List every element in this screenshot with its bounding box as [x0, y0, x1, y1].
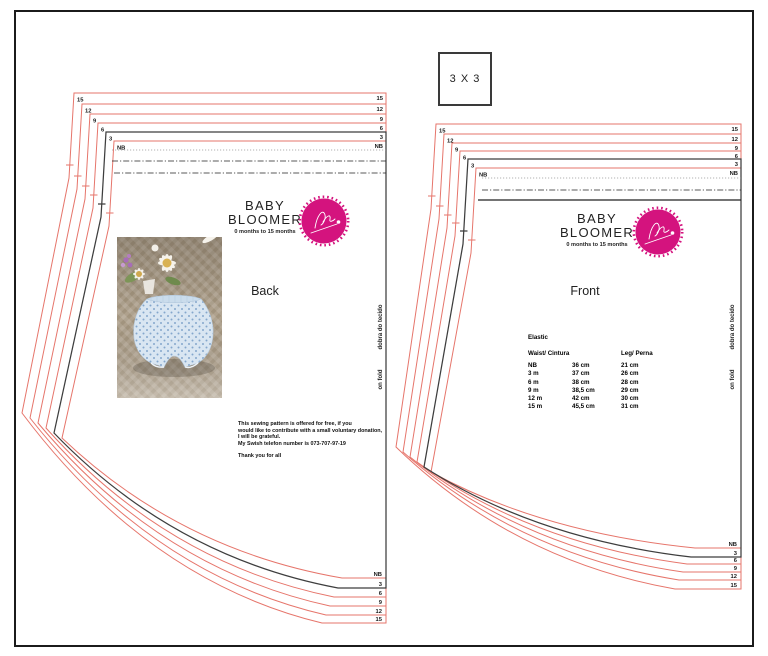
size-label: 3 — [109, 137, 113, 143]
front-fold-line-text: on fold dobra do tecido — [728, 262, 738, 432]
size-label: 6 — [734, 558, 738, 564]
pattern-sheet: 151515121212999666333NBNBNB1515151212129… — [0, 0, 768, 656]
fold-text-pt: dobra do tecido — [378, 305, 384, 350]
elastic-cell: 21 cm — [621, 363, 681, 369]
elastic-cell: 26 cm — [621, 371, 681, 377]
bloomer-photo-image — [117, 237, 222, 398]
size-label: 6 — [379, 591, 383, 597]
elastic-cell: 3 m — [528, 371, 572, 377]
size-label: 3 — [379, 582, 383, 588]
size-label: NB — [374, 572, 382, 578]
donation-note: This sewing pattern is offered for free,… — [238, 421, 400, 459]
elastic-cell: 38,5 cm — [572, 388, 621, 394]
leg-column-header: Leg/ Perna — [621, 350, 681, 357]
elastic-row: 12 m42 cm30 cm — [528, 396, 681, 402]
size-label: 12 — [377, 107, 383, 113]
waist-column-header: Waist/ Cintura — [528, 350, 621, 357]
size-label: 15 — [77, 98, 84, 104]
elastic-cell: 6 m — [528, 380, 572, 386]
scale-check-box: 3 X 3 — [438, 52, 492, 106]
elastic-cell: NB — [528, 363, 572, 369]
elastic-row: 3 m37 cm26 cm — [528, 371, 681, 377]
elastic-cell: 28 cm — [621, 380, 681, 386]
elastic-table-title: Elastic — [528, 334, 681, 341]
elastic-cell: 9 m — [528, 388, 572, 394]
front-piece-label: Front — [535, 284, 635, 298]
size-label: 15 — [732, 127, 739, 133]
brand-logo-icon — [632, 206, 684, 258]
size-label: 6 — [463, 156, 467, 162]
donation-line: would like to contribute with a small vo… — [238, 428, 400, 435]
elastic-row: 15 m45,5 cm31 cm — [528, 404, 681, 410]
elastic-cell: 15 m — [528, 404, 572, 410]
size-label: 12 — [731, 574, 737, 580]
elastic-cell: 30 cm — [621, 396, 681, 402]
size-label: 9 — [380, 117, 384, 123]
size-label: NB — [375, 144, 383, 150]
size-label: NB — [730, 171, 738, 177]
elastic-cell: 38 cm — [572, 380, 621, 386]
size-label: 6 — [380, 126, 384, 132]
size-label: 6 — [101, 128, 105, 134]
elastic-row: 6 m38 cm28 cm — [528, 380, 681, 386]
size-label: 9 — [734, 566, 738, 572]
elastic-table-rows: NB36 cm21 cm3 m37 cm26 cm6 m38 cm28 cm9 … — [528, 363, 681, 410]
size-label: 12 — [85, 109, 91, 115]
fold-text-pt: dobra do tecido — [730, 305, 736, 350]
size-label: 9 — [93, 119, 97, 125]
elastic-cell: 31 cm — [621, 404, 681, 410]
elastic-row: 9 m38,5 cm29 cm — [528, 388, 681, 394]
size-label: NB — [729, 542, 737, 548]
fold-text-en: on fold — [378, 370, 384, 390]
fold-text-en: on fold — [730, 370, 736, 390]
elastic-cell: 12 m — [528, 396, 572, 402]
size-label: 15 — [439, 129, 446, 135]
scale-check-label: 3 X 3 — [450, 73, 481, 85]
bloomer-photo — [117, 237, 222, 398]
size-label: 3 — [380, 135, 384, 141]
size-label: NB — [117, 146, 125, 152]
size-label: 3 — [735, 162, 739, 168]
donation-line: This sewing pattern is offered for free,… — [238, 421, 400, 428]
size-label: NB — [479, 173, 487, 179]
donation-line: I will be grateful. — [238, 434, 400, 441]
size-label: 15 — [731, 583, 738, 589]
size-label: 9 — [379, 600, 383, 606]
brand-logo — [298, 195, 350, 252]
elastic-table-headers: Waist/ Cintura Leg/ Perna — [528, 350, 681, 357]
elastic-cell: 36 cm — [572, 363, 621, 369]
brand-logo-icon — [298, 195, 350, 247]
donation-line: My Swish telefon number is 073-707-97-19 — [238, 441, 400, 448]
brand-logo — [632, 206, 684, 263]
size-label: 12 — [732, 137, 738, 143]
elastic-table: Elastic Waist/ Cintura Leg/ Perna NB36 c… — [528, 334, 681, 413]
back-piece-label: Back — [215, 284, 315, 298]
elastic-cell: 37 cm — [572, 371, 621, 377]
elastic-cell: 29 cm — [621, 388, 681, 394]
size-label: 3 — [471, 164, 475, 170]
elastic-cell: 42 cm — [572, 396, 621, 402]
size-label: 12 — [447, 139, 453, 145]
size-label: 15 — [376, 617, 383, 623]
size-label: 3 — [734, 551, 738, 557]
size-label: 15 — [377, 96, 384, 102]
elastic-row: NB36 cm21 cm — [528, 363, 681, 369]
size-label: 9 — [455, 148, 459, 154]
elastic-cell: 45,5 cm — [572, 404, 621, 410]
back-fold-line-text: on fold dobra do tecido — [376, 262, 386, 432]
donation-line: Thank you for all — [238, 453, 400, 460]
size-label: 12 — [376, 609, 382, 615]
